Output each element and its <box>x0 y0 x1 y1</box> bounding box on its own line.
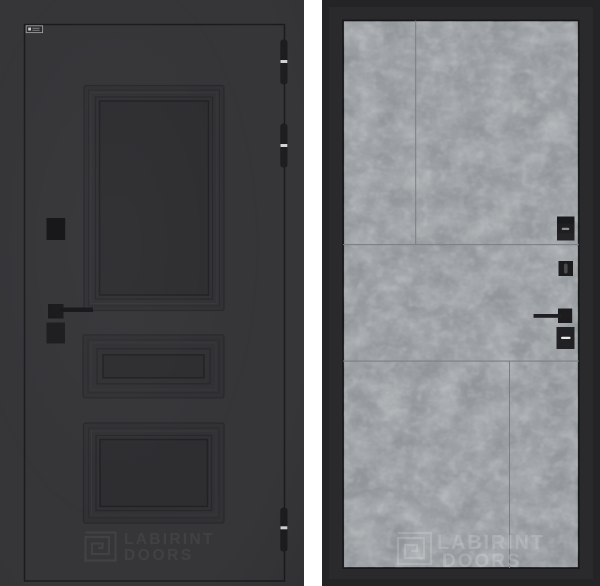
svg-text:DOORS: DOORS <box>442 551 522 572</box>
